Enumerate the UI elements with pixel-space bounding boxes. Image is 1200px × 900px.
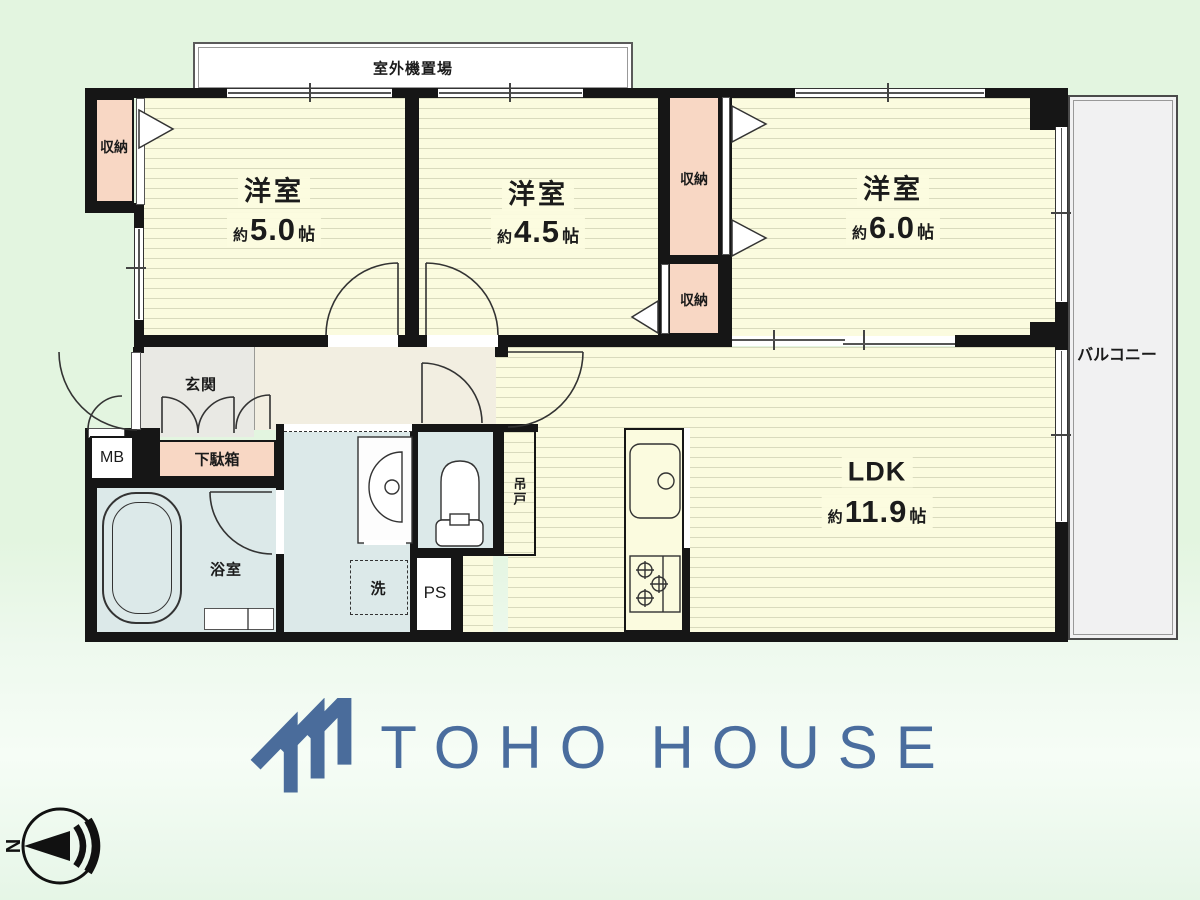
bathroom-label: 浴室 (210, 559, 242, 580)
toho-house-logo-text: TOHOHOUSE (380, 718, 954, 778)
shoe-cabinet-label: 下駄箱 (194, 449, 239, 470)
toho-house-logo-mark-icon (246, 698, 354, 798)
pipe-space-label: PS (424, 583, 447, 603)
room-western2-size: 約4.5帖 (491, 215, 585, 249)
room-ldk-size: 約11.9帖 (822, 495, 933, 529)
closet-lower-label: 収納 (680, 290, 708, 310)
toho-house-logo: TOHOHOUSE (0, 692, 1200, 804)
room-western2-name: 洋室 (502, 179, 574, 210)
toilet (436, 461, 483, 546)
laundry-label: 洗 (370, 578, 385, 599)
door-arcs (59, 263, 583, 554)
sliding-door-lines (732, 340, 955, 344)
closet-upper-label: 収納 (680, 169, 708, 189)
compass-north-label: N (6, 839, 25, 853)
balcony-label: バルコニー (1077, 341, 1157, 365)
room-western1-name: 洋室 (238, 176, 310, 207)
window-ticks (126, 83, 1071, 435)
washroom-vanity (358, 437, 412, 545)
closet-top-left-label: 収納 (100, 137, 128, 157)
room-western1-size: 約5.0帖 (227, 213, 321, 247)
kitchen-sink (630, 444, 680, 518)
room-western3-name: 洋室 (857, 174, 929, 205)
entrance-label: 玄関 (185, 374, 217, 395)
room-ldk-name: LDK (842, 456, 913, 487)
room-western3-size: 約6.0帖 (846, 211, 940, 245)
floorplan-page: 室外機置場 (0, 0, 1200, 900)
meter-box-label: MB (100, 449, 124, 467)
hanging-cupboard-label: 吊戸 (510, 477, 529, 507)
north-compass-icon: N (6, 800, 106, 895)
kitchen-stove (630, 556, 680, 612)
